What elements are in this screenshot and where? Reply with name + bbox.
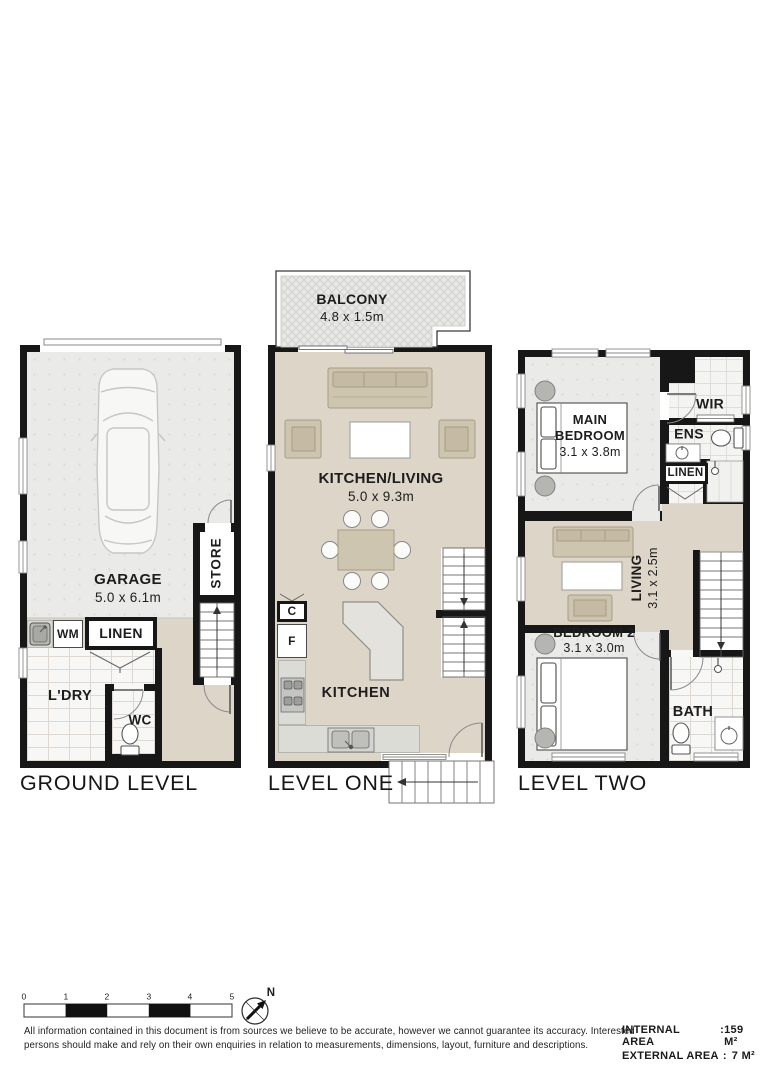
linen-cupboard-level2: LINEN	[663, 463, 708, 484]
level2-stairs-icon	[700, 552, 743, 657]
balcony-dims: 4.8 x 1.5m	[316, 309, 387, 325]
kitchen-living-label: KITCHEN/LIVING	[318, 470, 443, 489]
balcony-label-block: BALCONY 4.8 x 1.5m	[316, 291, 387, 325]
bath-door-arc	[671, 657, 703, 690]
bath-toilet-icon	[672, 723, 690, 754]
armchair2-icon	[568, 595, 612, 621]
scale-tick-1: 1	[63, 992, 68, 1003]
level1-stairs-icon	[443, 548, 485, 677]
external-area-value: 7 M²	[732, 1050, 755, 1062]
bath-shower-icon	[715, 658, 722, 673]
main-bedroom-line2: BEDROOM	[555, 428, 625, 444]
level1-bottom-window	[383, 755, 446, 760]
garage-dims: 5.0 x 6.1m	[94, 590, 162, 607]
ens-label: ENS	[674, 425, 704, 443]
bedside-table-icon	[535, 728, 555, 748]
linen-bifold-door	[90, 652, 150, 673]
linen2-bifold-door	[667, 487, 703, 499]
scale-tick-5: 5	[229, 992, 234, 1003]
bedside-table-icon	[535, 634, 555, 654]
bedroom2-door-arc	[634, 633, 660, 661]
ground-stairs-icon	[200, 603, 234, 677]
coffee-table2-icon	[562, 562, 622, 590]
floorplan-page: LINEN WM C F LINEN	[0, 0, 764, 1080]
entry-door-arc	[449, 723, 482, 757]
kitchen-label: KITCHEN	[322, 684, 391, 702]
scale-tick-2: 2	[104, 992, 109, 1003]
disclaimer-line2: persons should make and rely on their ow…	[24, 1040, 588, 1051]
bifold-above-c	[280, 594, 304, 601]
fridge: F	[277, 624, 307, 658]
cupboard-c: C	[277, 601, 307, 622]
dining-set-icon	[322, 511, 411, 590]
area-summary: INTERNAL AREA : 159 M² EXTERNAL AREA : 7…	[622, 1024, 759, 1062]
living-label: LIVING	[629, 547, 646, 608]
store-door-arc	[208, 500, 231, 523]
bedside-table-icon	[535, 476, 555, 496]
ground-level-title: GROUND LEVEL	[20, 771, 198, 796]
laundry-sink-icon	[30, 623, 50, 645]
wir-label: WIR	[696, 395, 724, 413]
scale-tick-4: 4	[187, 992, 192, 1003]
sofa-icon	[328, 368, 432, 408]
cupboard-c-label: C	[288, 604, 297, 619]
level-one-title: LEVEL ONE	[268, 771, 394, 796]
garage-roller-door	[44, 339, 221, 345]
disclaimer-line1: All information contained in this docume…	[24, 1026, 635, 1037]
external-area-label: EXTERNAL AREA	[622, 1050, 719, 1062]
scale-bar	[24, 1004, 232, 1017]
linen-label-level2: LINEN	[668, 466, 704, 480]
car-icon	[91, 369, 165, 553]
main-bedroom-line1: MAIN	[555, 412, 625, 428]
laundry-label: L'DRY	[48, 687, 92, 705]
coffee-table-icon	[350, 422, 410, 458]
store-label: STORE	[209, 537, 226, 588]
compass-icon	[242, 998, 268, 1024]
kitchen-living-label-block: KITCHEN/LIVING 5.0 x 9.3m	[318, 470, 443, 506]
window-icon	[19, 438, 27, 678]
internal-area-row: INTERNAL AREA : 159 M²	[622, 1024, 759, 1048]
external-area-colon: :	[723, 1050, 727, 1062]
main-bedroom-door-arc	[633, 485, 659, 511]
north-label: N	[267, 986, 276, 1000]
sofa2-icon	[553, 527, 633, 557]
bedside-table-icon	[535, 381, 555, 401]
linework-layer	[0, 0, 764, 1080]
bedroom2-label-block: BEDROOM 2 3.1 x 3.0m	[553, 625, 634, 657]
main-bedroom-dims: 3.1 x 3.8m	[555, 444, 625, 460]
level-two-title: LEVEL TWO	[518, 771, 647, 796]
main-bedroom-label-block: MAIN BEDROOM 3.1 x 3.8m	[555, 412, 625, 460]
cooktop-icon	[281, 678, 304, 712]
linen-cupboard-ground: LINEN	[85, 617, 157, 650]
ground-stairs-up-arrow	[213, 606, 221, 614]
internal-area-value: 159 M²	[724, 1024, 759, 1048]
ens-toilet-icon	[712, 428, 744, 448]
kitchen-island-icon	[343, 602, 403, 680]
stairs-up-arrow	[460, 620, 468, 628]
washing-machine: WM	[53, 620, 83, 648]
garage-label: GARAGE	[94, 571, 162, 590]
kitchen-sink-icon	[328, 728, 374, 752]
wardrobe-rail-icon	[697, 415, 734, 422]
external-area-row: EXTERNAL AREA : 7 M²	[622, 1050, 759, 1062]
level2-stairs-down-arrow	[717, 642, 725, 650]
internal-area-label: INTERNAL AREA	[622, 1024, 712, 1048]
balcony-label: BALCONY	[316, 291, 387, 309]
bedroom2-label: BEDROOM 2	[553, 625, 634, 641]
ens-basin-icon	[666, 444, 700, 462]
living-label-block: LIVING 3.1 x 2.5m	[629, 547, 662, 608]
window-icon	[267, 445, 275, 471]
ens-shower-icon	[707, 461, 743, 502]
wm-label: WM	[57, 627, 79, 642]
kitchen-living-dims: 5.0 x 9.3m	[318, 489, 443, 506]
living-dims: 3.1 x 2.5m	[646, 547, 662, 608]
bedroom2-dims: 3.1 x 3.0m	[553, 641, 634, 657]
garage-label-block: GARAGE 5.0 x 6.1m	[94, 571, 162, 607]
bath-basin-icon	[715, 717, 743, 750]
scale-tick-3: 3	[146, 992, 151, 1003]
wir-door-arc	[667, 394, 696, 423]
wc-label: WC	[128, 713, 151, 730]
linen-label-ground: LINEN	[99, 625, 143, 643]
bath-label: BATH	[673, 703, 713, 721]
scale-tick-0: 0	[21, 992, 26, 1003]
fridge-label: F	[288, 634, 296, 649]
